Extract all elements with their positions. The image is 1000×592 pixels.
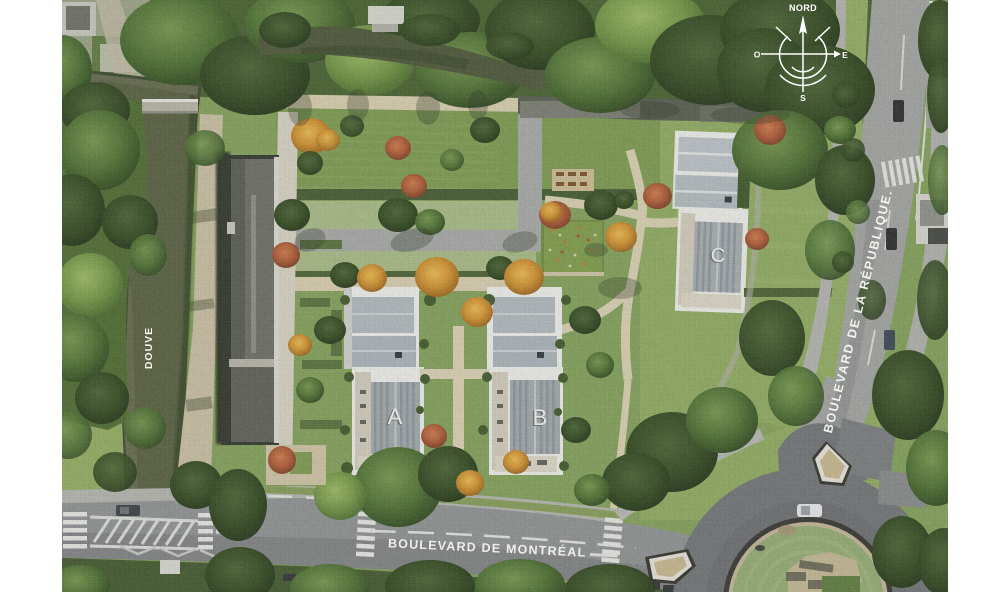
svg-text:S: S — [800, 93, 806, 103]
svg-text:NORD: NORD — [789, 3, 817, 13]
svg-text:E: E — [842, 50, 848, 60]
svg-text:DOUVE: DOUVE — [143, 327, 155, 369]
svg-text:O: O — [754, 50, 761, 60]
